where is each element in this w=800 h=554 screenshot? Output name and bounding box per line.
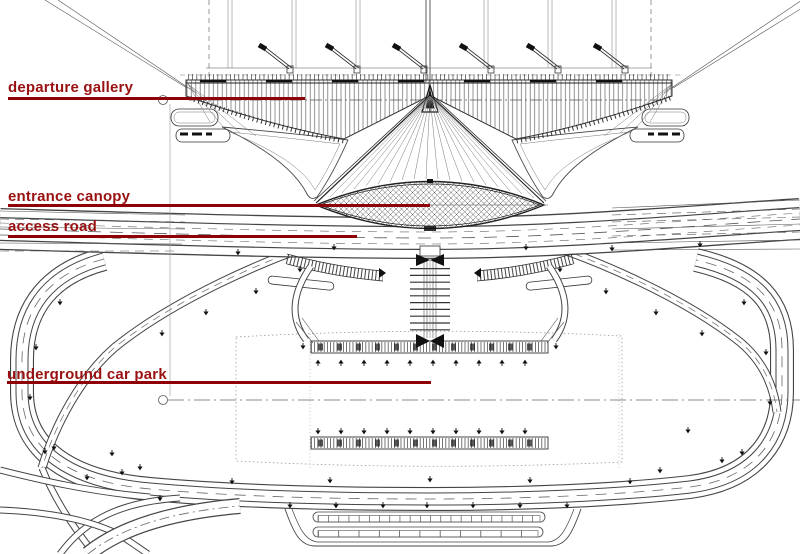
top-structure [180,0,680,82]
annotation-line-departure-gallery [8,97,305,100]
departure-gallery-band [186,77,672,139]
car-park-band-1 [300,341,558,366]
annotation-entrance-canopy: entrance canopy [8,189,130,204]
annotation-departure-gallery: departure gallery [8,80,133,95]
annotation-line-access-road [8,235,357,238]
car-park-band-2 [311,428,548,449]
ramp-right [508,232,777,412]
site-plan: departure gallery entrance canopy access… [0,0,800,554]
annotation-underground-car-park: underground car park [7,367,167,382]
terminal-side-elements-left [45,0,386,343]
central-walkway [416,246,444,348]
annotation-access-road: access road [8,219,97,234]
